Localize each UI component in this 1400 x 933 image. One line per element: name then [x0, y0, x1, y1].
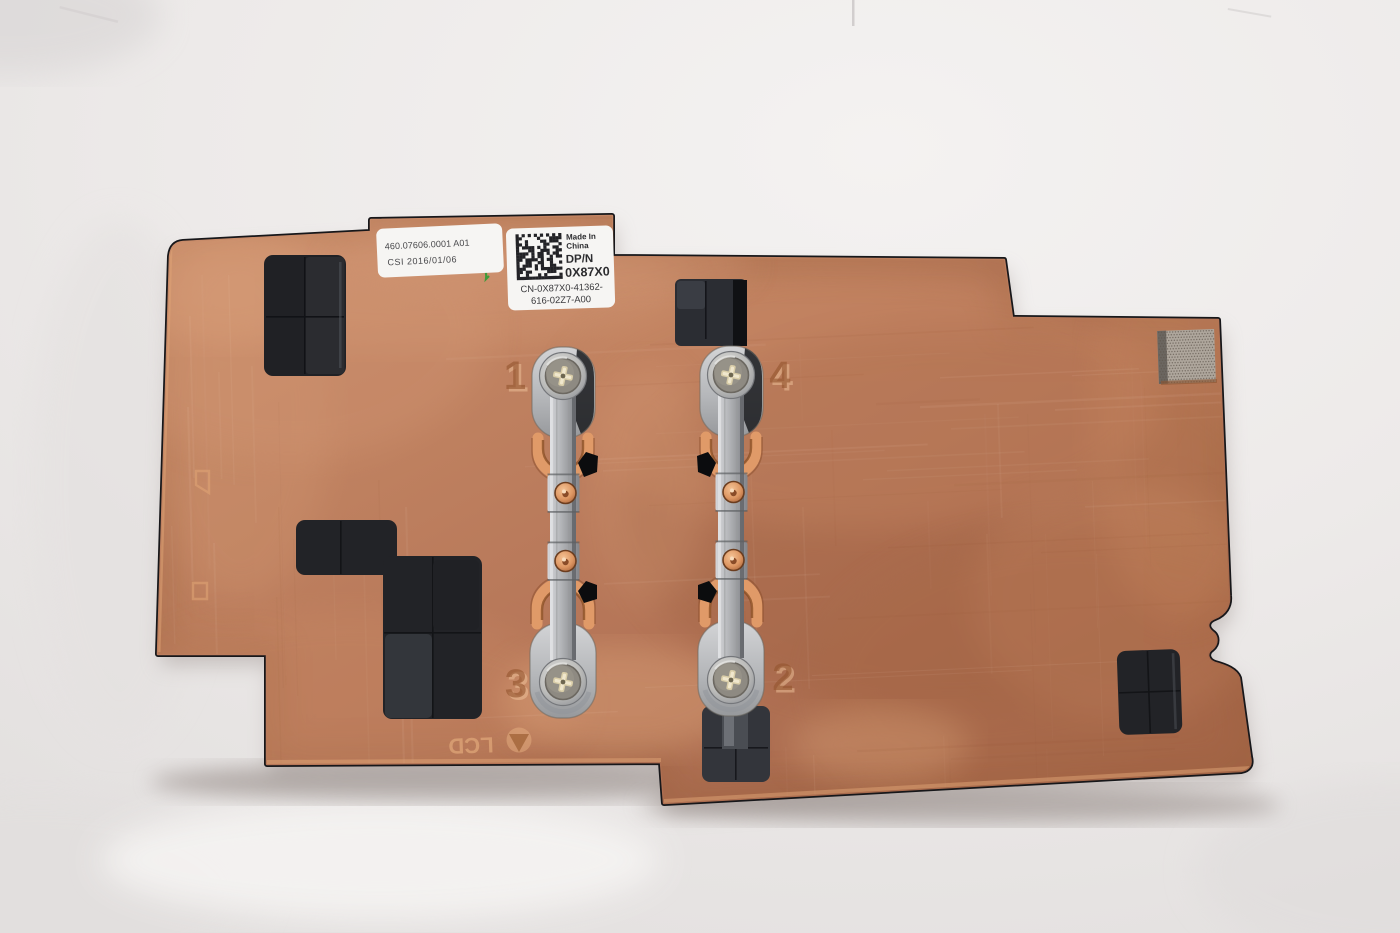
svg-text:Made In: Made In: [566, 232, 596, 242]
svg-text:1: 1: [504, 354, 526, 398]
svg-text:China: China: [566, 241, 589, 251]
svg-text:2: 2: [772, 657, 793, 699]
svg-text:0X87X0: 0X87X0: [565, 264, 610, 279]
svg-text:616-02Z7-A00: 616-02Z7-A00: [531, 293, 591, 306]
svg-text:4: 4: [769, 355, 790, 397]
svg-text:LCD: LCD: [448, 732, 494, 759]
svg-text:3: 3: [505, 662, 527, 706]
svg-text:DP/N: DP/N: [566, 253, 594, 266]
